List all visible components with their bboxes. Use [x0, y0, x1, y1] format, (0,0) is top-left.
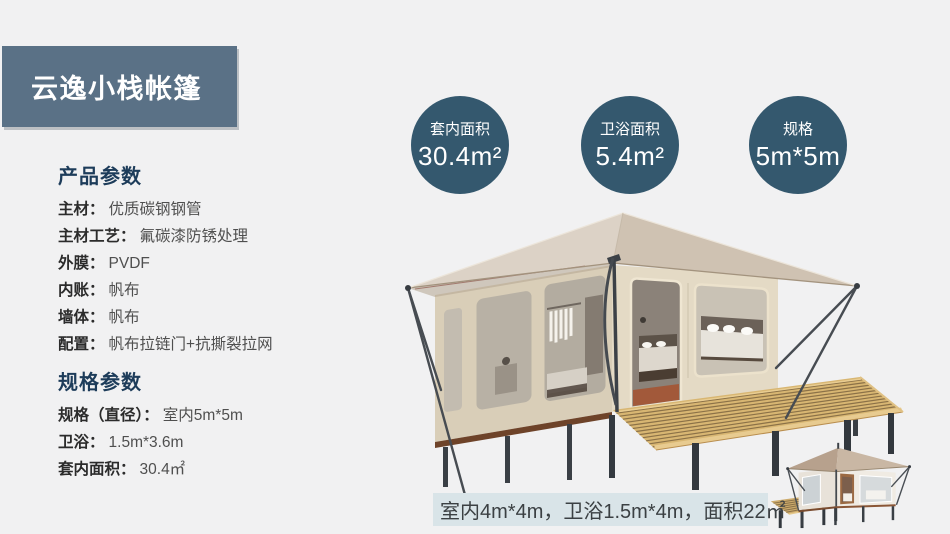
param-label: 墙体： [58, 309, 105, 326]
spec-params-heading: 规格参数 [58, 366, 142, 395]
param-label: 内账： [58, 282, 105, 299]
param-label: 配置： [58, 336, 105, 353]
product-params-list: 主材：优质碳钢钢管 主材工艺：氟碳漆防锈处理 外膜：PVDF 内账：帆布 墙体：… [58, 196, 273, 358]
stat-value: 5m*5m [756, 141, 841, 172]
stat-value: 30.4m² [418, 141, 502, 172]
variant-spec-strip: 室内4m*4m，卫浴1.5m*4m，面积22㎡ [433, 493, 768, 526]
param-label: 规格（直径）： [58, 407, 159, 424]
thumbnail-tent-render [770, 425, 950, 534]
param-value: 室内5m*5m [163, 407, 243, 424]
stat-circle-bathroom-area: 卫浴面积 5.4m² [581, 96, 679, 194]
param-value: 帆布 [109, 309, 140, 326]
param-row: 配置：帆布拉链门+抗撕裂拉网 [58, 331, 273, 358]
param-label: 主材工艺： [58, 228, 136, 245]
product-slide: 云逸小栈帐篷 套内面积 30.4m² 卫浴面积 5.4m² 规格 5m*5m 产… [0, 0, 950, 534]
param-label: 卫浴： [58, 434, 105, 451]
param-value: 氟碳漆防锈处理 [140, 228, 249, 245]
param-value: PVDF [109, 255, 150, 272]
stat-value: 5.4m² [596, 141, 665, 172]
param-label: 主材： [58, 201, 105, 218]
param-row: 主材：优质碳钢钢管 [58, 196, 273, 223]
stat-circle-interior-area: 套内面积 30.4m² [411, 96, 509, 194]
variant-spec-text: 室内4m*4m，卫浴1.5m*4m，面积22㎡ [440, 495, 786, 524]
stat-label: 卫浴面积 [600, 118, 660, 139]
param-row: 主材工艺：氟碳漆防锈处理 [58, 223, 273, 250]
param-row: 内账：帆布 [58, 277, 273, 304]
param-value: 30.4㎡ [140, 461, 186, 478]
stat-circle-spec: 规格 5m*5m [749, 96, 847, 194]
param-value: 1.5m*3.6m [109, 434, 184, 451]
param-value: 帆布拉链门+抗撕裂拉网 [109, 336, 273, 353]
param-label: 外膜： [58, 255, 105, 272]
page-title: 云逸小栈帐篷 [31, 67, 202, 106]
param-row: 套内面积：30.4㎡ [58, 456, 243, 483]
param-value: 优质碳钢钢管 [109, 201, 202, 218]
param-row: 卫浴：1.5m*3.6m [58, 429, 243, 456]
product-params-heading: 产品参数 [58, 160, 142, 189]
param-label: 套内面积： [58, 461, 136, 478]
param-row: 墙体：帆布 [58, 304, 273, 331]
param-row: 外膜：PVDF [58, 250, 273, 277]
title-banner: 云逸小栈帐篷 [2, 46, 237, 127]
param-value: 帆布 [109, 282, 140, 299]
spec-params-list: 规格（直径）：室内5m*5m 卫浴：1.5m*3.6m 套内面积：30.4㎡ [58, 402, 243, 483]
stat-label: 套内面积 [430, 118, 490, 139]
stat-label: 规格 [783, 118, 813, 139]
param-row: 规格（直径）：室内5m*5m [58, 402, 243, 429]
